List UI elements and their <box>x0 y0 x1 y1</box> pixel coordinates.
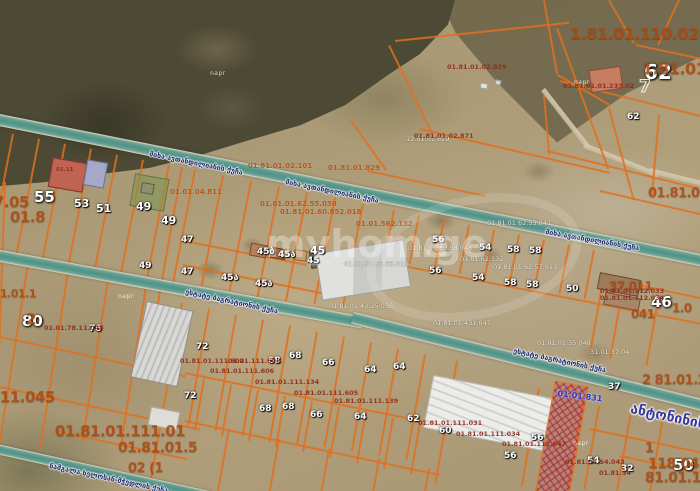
parcel-number: 60 <box>439 427 452 436</box>
cadastral-code: 1.01.1 <box>0 288 36 299</box>
cadastral-code: 01.81.01.111.031 <box>418 420 482 427</box>
cadastral-code: 2 81.01.3 <box>642 374 700 387</box>
cadastral-code: 01.81.01.5 <box>118 441 197 455</box>
parcel-number: 49 <box>139 262 152 271</box>
cadastral-code: 01.81.01.829 <box>328 165 380 172</box>
cadastral-map-viewport[interactable]: 555351494947494745ა45ა45ბ45ა454556565458… <box>0 0 700 491</box>
cadastral-code: 01.81.01.111.047 <box>502 441 566 448</box>
parcel-number: 66 <box>322 359 335 368</box>
cadastral-code: 01.81.01.111.605 <box>294 390 358 397</box>
parcel-number: 49 <box>136 201 151 212</box>
cadastral-code: 01.81.01.60.852.018 <box>280 209 361 216</box>
watermark-ge-suffix: .ge <box>420 222 487 266</box>
cadastral-code: 01.81.01.111.606 <box>210 368 274 375</box>
cadastral-code: 02 (1 <box>128 462 163 475</box>
cadastral-code: 041 <box>631 308 655 320</box>
cadastral-code: 01.01.04.811 <box>170 189 222 196</box>
cadastral-code: 01.81.01.111.034 <box>456 431 520 438</box>
cadastral-code: 01.8 <box>10 210 45 225</box>
napr-watermark: napr <box>210 71 226 77</box>
cadastral-code: 01.81.01.02.101 <box>248 163 312 170</box>
napr-watermark: napr <box>574 80 590 86</box>
cadastral-code: 118.043 <box>648 457 700 471</box>
parcel-number: 47 <box>181 268 194 277</box>
cadastral-code: 01.81.01.111.134 <box>255 379 319 386</box>
building <box>495 80 502 86</box>
cadastral-code: 01.81.0 <box>648 187 700 200</box>
parcel-number: 49 <box>161 215 176 226</box>
parcel-number: 55 <box>34 190 55 205</box>
parcel-number: 68 <box>289 352 302 361</box>
cadastral-code: 01.81.01.62.55.030 <box>260 201 337 208</box>
cadastral-code: 81.01.1 <box>645 471 700 485</box>
parcel-number: 45ა <box>221 274 239 283</box>
building <box>83 159 108 188</box>
parcel-number: 53 <box>74 198 89 209</box>
cadastral-code: 01.81.01.54.043 <box>565 459 625 466</box>
cadastral-code: 01.81.01.111.139 <box>334 398 398 405</box>
cadastral-code: 01.81.01.111.01 <box>55 424 185 439</box>
parcel-number: 50 <box>566 285 579 294</box>
parcel-number: 45ა <box>255 280 273 289</box>
parcel-number: 7 <box>639 79 651 96</box>
parcel-number: 68 <box>282 403 295 412</box>
cadastral-code: 01.81.01.02.829 <box>447 64 507 71</box>
parcel-number: 64 <box>393 363 406 372</box>
cadastral-code: 111.045 <box>0 390 55 405</box>
parcel-number: 62 <box>627 113 640 122</box>
cadastral-code: 01.81.01.02.871 <box>414 133 474 140</box>
cadastral-code: 1 <box>645 442 654 455</box>
napr-watermark: napr <box>573 441 589 447</box>
cadastral-code: 01.01.111.606 <box>228 358 281 365</box>
building <box>480 82 489 89</box>
cadastral-code: 01.81.01.35.048 <box>537 340 591 347</box>
parcel-number: 72 <box>184 392 197 401</box>
napr-watermark: napr <box>118 294 134 300</box>
cadastral-code: 31.01.37.04 <box>590 349 629 356</box>
cadastral-code: 01.81.34 <box>599 470 631 477</box>
parcel-number: 64 <box>364 366 377 375</box>
parcel-number: 56 <box>504 452 517 461</box>
parcel-number: 66 <box>310 411 323 420</box>
cadastral-code: 1.0 <box>672 302 692 314</box>
cadastral-code: 01.01.78.11.048 <box>44 325 104 332</box>
building <box>140 182 155 195</box>
parcel-number: 68 <box>259 405 272 414</box>
cadastral-code: 1.81.01.1 <box>642 61 700 77</box>
parcel-number: 37 <box>608 383 621 392</box>
cadastral-code: 01.81.01.112.034 <box>600 295 664 302</box>
cadastral-code: 01.11 <box>56 168 73 174</box>
parcel-number: 64 <box>354 413 367 422</box>
cadastral-code: 1.81.01.110.026 <box>570 26 700 42</box>
parcel-number: 51 <box>96 203 111 214</box>
parcel-number: 72 <box>196 343 209 352</box>
parcel-number: 47 <box>181 236 194 245</box>
cadastral-code: 2 <box>26 312 36 327</box>
